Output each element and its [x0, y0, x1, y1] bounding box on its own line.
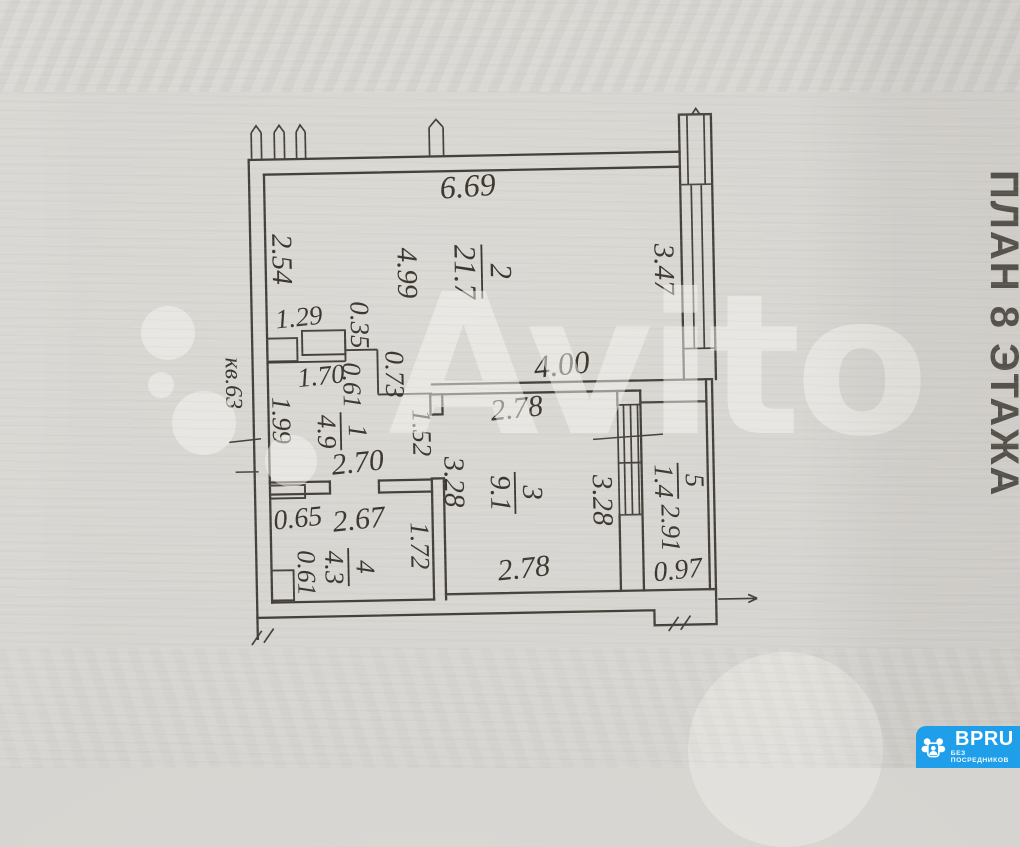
svg-text:1.4: 1.4 [649, 464, 680, 498]
dim-opening: 1.52 [406, 409, 437, 457]
bath-shaft [272, 570, 295, 600]
badge-brand: BPRU [955, 729, 1014, 749]
floor-plan-drawing: 6.69 1.29 1.70 4.00 2.78 2.70 0.65 2.67 … [0, 0, 1020, 778]
dim-left-lower: 1.99 [266, 396, 297, 444]
dim-room1-width: 2.70 [330, 443, 386, 481]
dim-right-window: 3.47 [647, 242, 680, 296]
dim-inner-wall: 4.00 [532, 343, 592, 385]
svg-text:1: 1 [343, 424, 373, 438]
svg-text:21.7: 21.7 [447, 244, 483, 300]
pilaster-lines [687, 108, 705, 184]
dim-bath-nook: 0.65 [272, 501, 324, 537]
dim-top-width: 6.69 [438, 166, 496, 206]
badge-text: BPRU БЕЗ ПОСРЕДНИКОВ [951, 729, 1018, 765]
svg-text:4.9: 4.9 [312, 414, 343, 449]
dim-room3-left: 3.28 [437, 455, 470, 508]
scanned-floor-plan-photo: { "plan": { "apartment_label": "кв.63", … [0, 0, 1020, 768]
inner-wall-horizontal [432, 379, 712, 394]
svg-text:5: 5 [680, 473, 710, 487]
room3-label: 3 9.1 [484, 471, 549, 514]
room5-label: 5 1.4 [649, 462, 711, 499]
bath-niche [270, 485, 305, 499]
dim-room3-bottom: 2.78 [496, 549, 552, 587]
dim-shaft-width: 0.61 [292, 550, 322, 596]
hall-bath-wall [270, 480, 432, 495]
dim-bath-width: 2.67 [331, 500, 389, 539]
right-wall [679, 114, 716, 380]
dim-room3-right: 3.28 [586, 474, 619, 527]
apartment-number-label: кв.63 [219, 357, 246, 409]
dim-room3-top: 2.78 [489, 389, 545, 427]
svg-text:4.3: 4.3 [319, 550, 350, 584]
dim-room2-depth: 4.99 [390, 247, 423, 299]
dim-bath-depth: 1.72 [405, 522, 436, 570]
dim-hall-nook: 0.61 [337, 362, 367, 408]
floor-plan-photo: 6.69 1.29 1.70 4.00 2.78 2.70 0.65 2.67 … [0, 0, 1020, 778]
bpru-badge: BPRU БЕЗ ПОСРЕДНИКОВ [916, 726, 1020, 768]
dim-closet-depth: 0.35 [344, 301, 375, 349]
svg-text:3: 3 [516, 484, 548, 500]
svg-text:4: 4 [350, 560, 380, 574]
dim-wall-jog: 0.73 [379, 350, 410, 398]
svg-text:2: 2 [484, 263, 519, 279]
badge-tagline: БЕЗ ПОСРЕДНИКОВ [951, 751, 1018, 765]
entrance-arrow [718, 594, 757, 603]
dim-closet-run: 1.29 [274, 300, 325, 335]
bottom-wall [257, 589, 717, 633]
closet-small [267, 338, 297, 362]
window-kitchen-balcony [617, 405, 642, 515]
svg-text:9.1: 9.1 [484, 475, 517, 512]
side-caption: ПЛАН 8 ЭТАЖА [984, 170, 1020, 497]
dim-balcony-width: 0.97 [652, 552, 705, 588]
people-icon [920, 734, 947, 761]
room2-label: 2 21.7 [447, 244, 519, 301]
room4-label: 4 4.3 [319, 548, 381, 587]
closet-large [302, 330, 345, 355]
dim-balcony-length: 2.91 [655, 504, 686, 552]
dim-left-upper: 2.54 [265, 234, 298, 285]
window-main-room [679, 108, 716, 349]
